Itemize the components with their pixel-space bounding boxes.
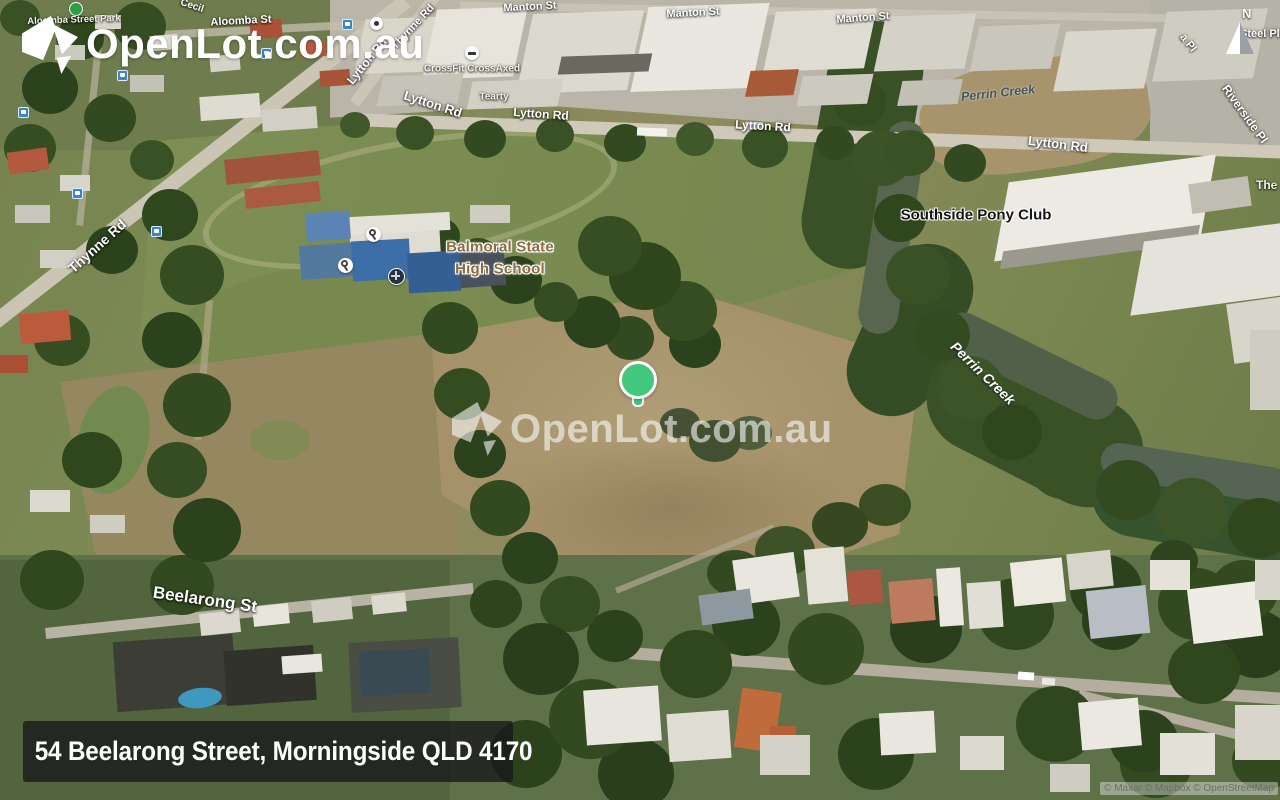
openlot-logo-icon (452, 402, 502, 457)
map-canvas[interactable]: Aloomba Street Park Aloomba St Cecil Man… (0, 0, 1280, 800)
openlot-logo[interactable]: OpenLot.com.au (22, 14, 424, 74)
gym-icon (465, 46, 479, 60)
address-bar: 54 Beelarong Street, Morningside QLD 417… (23, 721, 513, 782)
map-attribution[interactable]: © Maxar © Mapbox © OpenStreetMap (1100, 782, 1278, 795)
north-label: N (1242, 6, 1251, 21)
bus-stop-icon (151, 226, 162, 237)
tennis-icon (366, 227, 381, 242)
openlot-logo-text: OpenLot.com.au (86, 20, 424, 68)
openlot-watermark-text: OpenLot.com.au (510, 407, 833, 452)
bus-stop-icon (18, 107, 29, 118)
basketball-icon (388, 268, 405, 285)
bus-stop-icon (72, 188, 83, 199)
openlot-logo-icon (22, 14, 78, 74)
north-compass[interactable]: N (1224, 6, 1260, 56)
poi-label-the-s: The S (1256, 178, 1280, 192)
address-text: 54 Beelarong Street, Morningside QLD 417… (23, 736, 532, 767)
map-pin-marker[interactable] (619, 361, 659, 411)
tennis-icon (338, 258, 353, 273)
pin-head (619, 361, 657, 399)
